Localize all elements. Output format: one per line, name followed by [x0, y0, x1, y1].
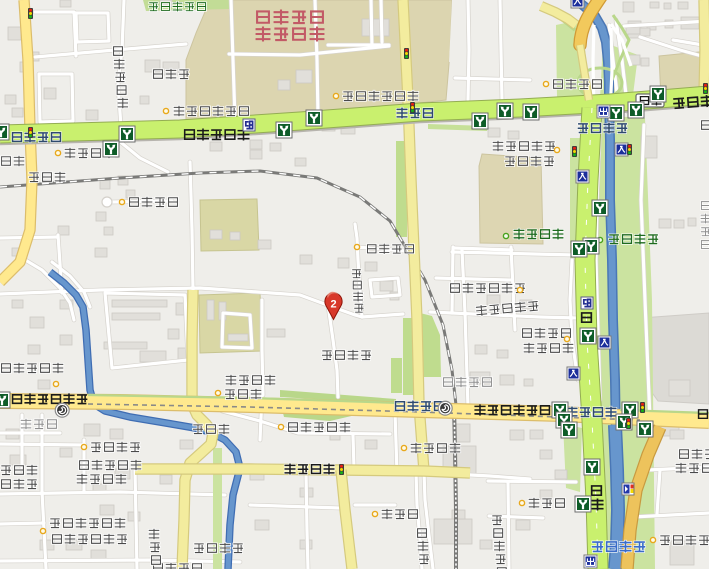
svg-text:2: 2: [330, 299, 336, 311]
